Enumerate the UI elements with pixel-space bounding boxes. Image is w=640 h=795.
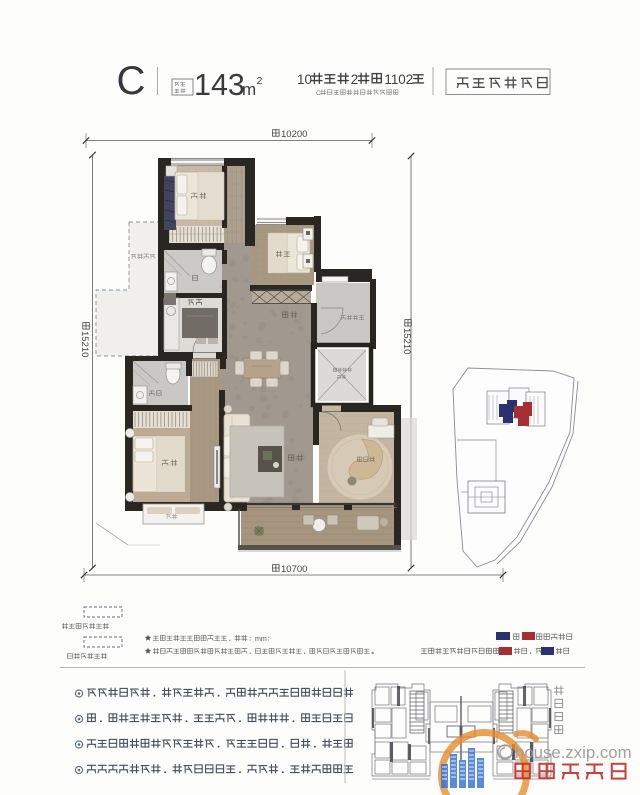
svg-text:mm: mm <box>255 635 267 643</box>
svg-text:10200: 10200 <box>281 129 307 140</box>
svg-text:house.zxip.com: house.zxip.com <box>515 743 632 762</box>
svg-text:2: 2 <box>351 72 358 87</box>
svg-text:15210: 15210 <box>401 328 412 354</box>
svg-text:m: m <box>242 80 256 99</box>
svg-text:10: 10 <box>297 72 312 87</box>
svg-text:15210: 15210 <box>79 331 90 357</box>
svg-text:1102: 1102 <box>384 72 413 87</box>
svg-text:C: C <box>316 90 321 97</box>
svg-text:143: 143 <box>194 68 245 102</box>
svg-text:10700: 10700 <box>281 564 307 575</box>
svg-text:2: 2 <box>257 75 263 87</box>
svg-text:C: C <box>117 59 146 103</box>
